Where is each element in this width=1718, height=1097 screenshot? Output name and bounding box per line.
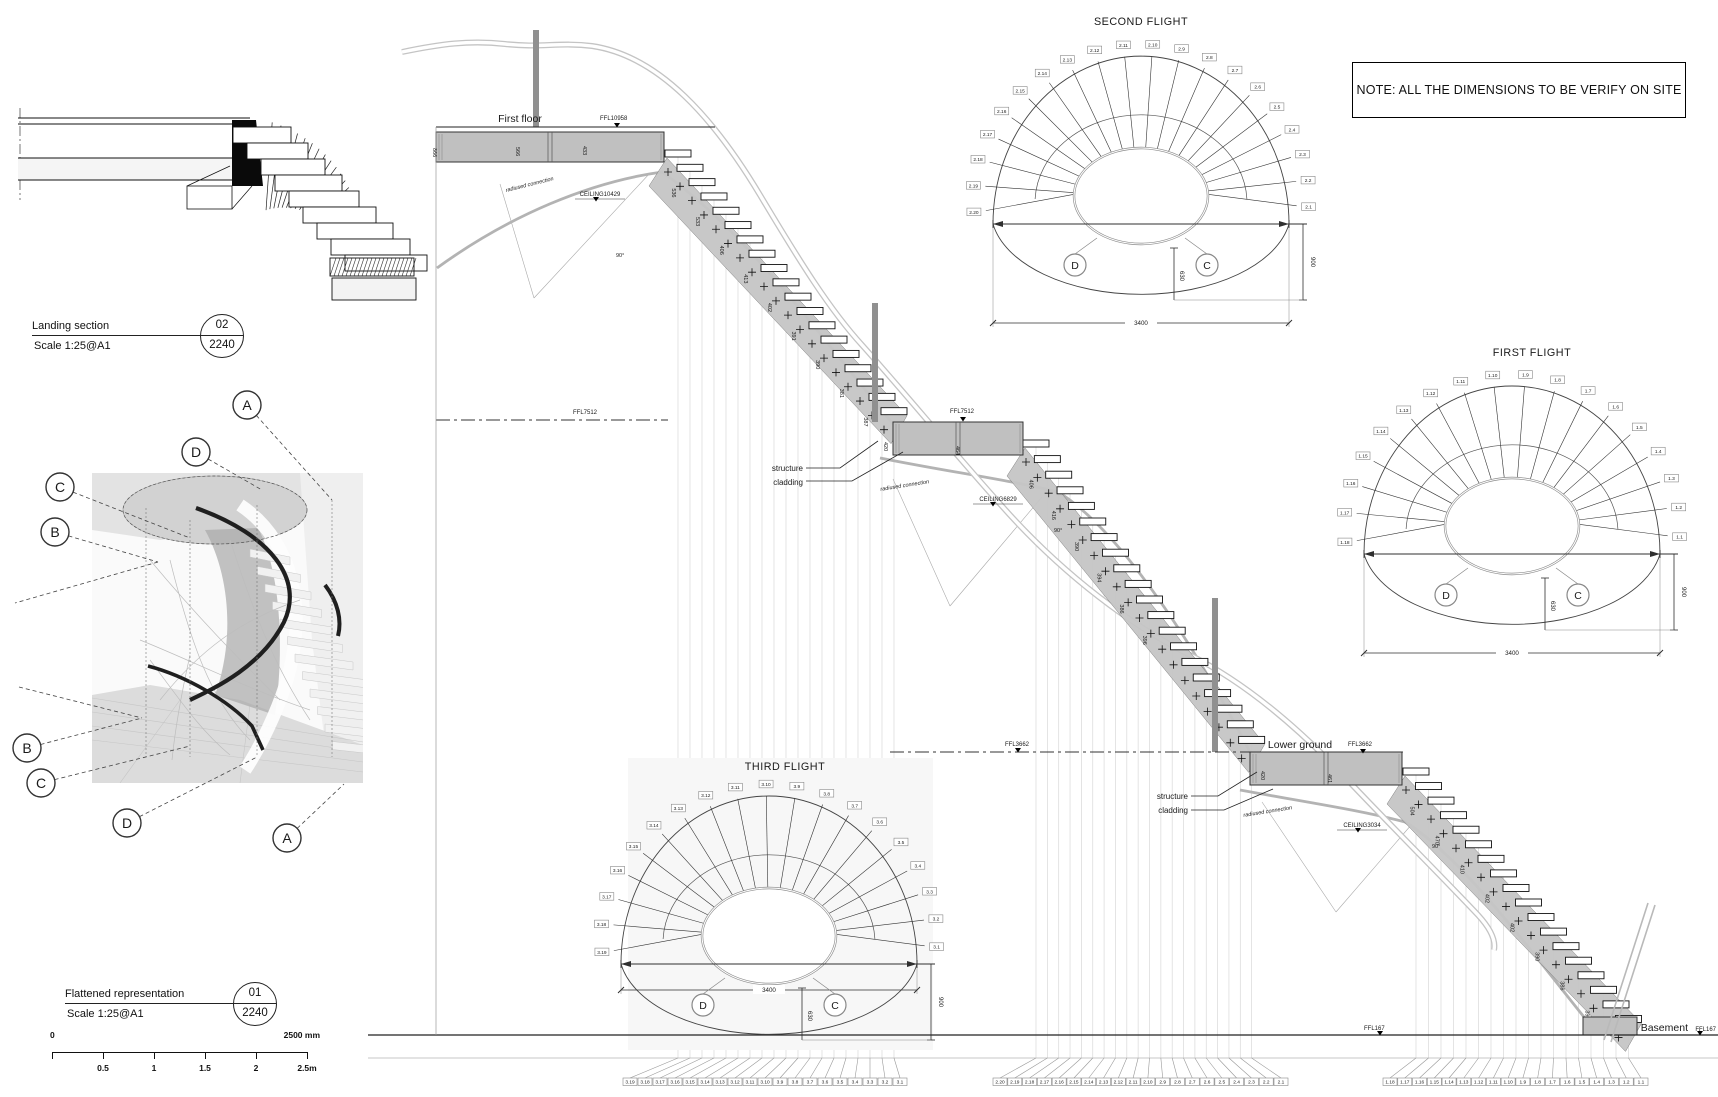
riser-dim: 396 [1141,636,1147,645]
tread-tag: 1.8 [1534,1080,1541,1086]
tread-tags: 3.193.183.173.163.153.143.133.123.113.10… [623,1058,1648,1086]
tread-label: 3.6 [876,820,883,826]
riser-dim: 386 [1559,981,1565,990]
note-box: NOTE: ALL THE DIMENSIONS TO BE VERIFY ON… [1352,62,1686,118]
cascade-step [331,239,410,255]
tread-tag: 2.13 [1099,1080,1109,1086]
tread [1137,596,1163,603]
post-second-landing [872,303,878,422]
tag-leader [825,1058,834,1078]
tread [1091,534,1117,541]
cascade-step [261,159,325,175]
tag-leader [1508,1058,1516,1078]
tread [785,293,811,300]
outer-rail-outline [402,42,1494,950]
tread [1227,721,1253,728]
tread-label: 2.15 [1015,88,1025,94]
tread-label: 3.2 [933,917,940,923]
tread-tag: 2.3 [1248,1080,1255,1086]
tag-leader [1434,1058,1453,1078]
tag-leader [1218,1058,1237,1078]
riser-dim: 391 [790,331,796,340]
sheet-number: 01 [234,983,276,1004]
tread-label: 2.6 [1254,85,1261,91]
tag-leader [1629,1058,1642,1078]
tread-tag: 2.1 [1278,1080,1285,1086]
tag-leader [1089,1058,1104,1078]
ffl-lower-ref: FFL3662 [1005,742,1030,748]
tag-leader [630,1058,678,1078]
tread-tag: 3.12 [730,1080,740,1086]
lower-slab [332,278,416,300]
tread-label: 2.20 [969,210,979,216]
structure-label-2: structure [1157,792,1189,801]
tread-tag: 2.15 [1069,1080,1079,1086]
tread-line [1362,487,1447,513]
tread-label: 1.17 [1340,510,1350,516]
tread-tag: 2.2 [1263,1080,1270,1086]
tag-leader [1030,1058,1059,1078]
tread [1466,841,1492,848]
tag-leader [810,1058,822,1078]
tread-label: 1.18 [1340,540,1350,546]
tread-tag: 3.6 [822,1080,829,1086]
cascade-step [247,143,308,159]
tread-label: 1.1 [1676,535,1683,541]
tread-label: 1.5 [1636,425,1643,431]
cascade-step [317,223,393,239]
tag-leader [1044,1058,1070,1078]
note-text: NOTE: ALL THE DIMENSIONS TO BE VERIFY ON… [1356,83,1681,97]
cascade-step [345,255,427,271]
tread-tag: 2.6 [1204,1080,1211,1086]
tread [1114,565,1140,572]
landing-dim: 420 [1259,771,1265,780]
lower-ground-landing [1250,752,1402,785]
tread-tag: 1.9 [1520,1080,1527,1086]
landing-dim: 461 [1326,774,1332,783]
tread-tag: 3.16 [670,1080,680,1086]
tag-leader [1229,1058,1251,1078]
tread-tag: 3.9 [777,1080,784,1086]
plan-marker-C: C [831,1000,839,1012]
tag-leader [1579,1058,1582,1078]
tread-label: 1.13 [1399,408,1409,414]
tread-label: 3.8 [823,791,830,797]
sheet-ref: 2240 [234,1004,276,1023]
titleblock-rule [32,335,204,336]
plan-marker-C: C [1203,260,1211,272]
tread-label: 3.11 [731,785,740,791]
landing-dim: 464 [954,446,960,455]
plan-marker-D: D [1071,260,1079,272]
flight-title-first: FIRST FLIGHT [1493,347,1571,359]
tread [1416,783,1442,790]
tread-line [1012,118,1086,169]
tag-leader [1195,1058,1207,1078]
riser-dim: 402 [766,303,772,312]
riser-dim: 406 [1027,480,1033,489]
dim-centre: 630 [806,1011,812,1022]
tread-label: 2.18 [973,157,983,163]
tread-label: 1.4 [1655,449,1662,455]
riser-dim: 416 [1050,511,1056,520]
tread [1216,705,1242,712]
tread-line [1579,524,1668,535]
tread [881,408,907,415]
dim-width: 3400 [762,987,776,994]
tag-leader [882,1058,885,1078]
tread-tag: 2.7 [1189,1080,1196,1086]
tread [1441,812,1467,819]
tread-label: 3.16 [613,868,623,874]
titleblock-rule [65,1003,237,1004]
tread-line [1563,435,1630,495]
tread [677,164,703,171]
radiused-connection-2: radiused connection [880,479,930,493]
tread-tag: 2.12 [1114,1080,1124,1086]
tread-line [998,139,1079,176]
view-scale: Scale 1:25@A1 [67,1008,144,1020]
tread-label: 2.19 [969,183,979,189]
tread-tag: 3.15 [685,1080,695,1086]
chord-arrow [1364,551,1374,557]
tread-tag: 3.18 [640,1080,650,1086]
tread-tag: 3.3 [867,1080,874,1086]
stair-void [1074,148,1208,244]
ffl-basement-a: FFL167 [1364,1026,1385,1032]
tread-line [1049,83,1101,157]
ffl-basement-b: FFL167 [1695,1027,1716,1033]
tread-label: 1.10 [1488,373,1498,379]
tread-label: 1.3 [1668,476,1675,482]
tread [833,350,859,357]
chord-arrow [993,221,1003,227]
angle-90-3: 90° [1432,844,1440,850]
tread-label: 2.2 [1305,178,1312,184]
marker-letter-A: A [242,397,252,413]
tread-line [1411,419,1468,489]
dim-right: 900 [1309,257,1315,268]
sheet-ref: 2240 [201,336,243,355]
scale-tick [205,1052,206,1059]
tread-label: 1.2 [1675,505,1682,511]
tread-label: 3.14 [649,823,659,829]
tread [1503,884,1529,891]
tag-leader [1161,1058,1163,1078]
chord-arrow [621,961,631,967]
tread [1023,440,1049,447]
landing-slab [18,158,238,180]
tag-leader [1405,1058,1429,1078]
landing-dim: 566 [514,147,520,156]
tread-tag: 3.7 [807,1080,814,1086]
scale-bar-line [52,1052,307,1053]
tread-label: 1.11 [1456,379,1465,385]
tread-line [1357,524,1445,540]
tread-tag: 3.19 [625,1080,635,1086]
tread [1478,855,1504,862]
tread-label: 2.7 [1232,68,1239,74]
tread-tag: 1.3 [1608,1080,1615,1086]
tag-leader [1133,1058,1138,1078]
tread-label: 2.1 [1305,205,1312,211]
riser-dim: 390 [814,360,820,369]
basement-label: Basement [1641,1022,1688,1034]
tread-line [1578,509,1666,520]
scale-tick [307,1052,308,1059]
tread-line [1208,181,1297,191]
tread-tag: 1.1 [1638,1080,1645,1086]
plan-marker-D: D [699,1000,707,1012]
plan-marker-D: D [1442,590,1450,602]
tread-label: 2.10 [1148,42,1158,48]
tread-label: 1.12 [1426,391,1436,397]
tread [689,179,715,186]
radiused-connection-1: radiused connection [505,176,554,194]
tread-tag: 2.5 [1219,1080,1226,1086]
scale-tick [256,1052,257,1059]
tread-label: 1.14 [1376,429,1386,435]
marker-leader [1075,238,1097,254]
tread-tag: 2.8 [1174,1080,1181,1086]
marker-letter-D: D [122,815,132,831]
dim-width: 3400 [1134,320,1148,327]
angle-90-2: 90° [1054,528,1062,534]
riser-dim: 381 [838,389,844,398]
stair-void [702,888,836,984]
tag-leader [1604,1058,1612,1078]
ceiling-lower: CEILING3034 [1343,823,1381,829]
riser-dim: 386 [1118,604,1124,613]
tread-label: 3.17 [602,894,612,900]
marker-letter-B: B [50,524,59,540]
marker-leader [1446,568,1468,584]
tread [797,307,823,314]
tread [1516,899,1542,906]
tread-tag: 1.12 [1474,1080,1484,1086]
tag-leader [1059,1058,1081,1078]
scale-max: 2500 mm [284,1030,320,1040]
dim-centre: 630 [1178,271,1184,282]
tag-leader [894,1058,900,1078]
tread-tag: 1.4 [1593,1080,1600,1086]
tread [761,265,787,272]
tread-tag: 3.1 [897,1080,904,1086]
scale-tick-label: 1 [152,1063,157,1073]
tag-leader [1552,1058,1553,1078]
scale-tick [103,1052,104,1059]
tread [1171,643,1197,650]
riser-dim: 410 [1459,865,1465,874]
tread-label: 2.9 [1178,47,1185,53]
tag-leader [840,1058,846,1078]
tag-leader [1172,1058,1177,1078]
tread [1102,549,1128,556]
scale-tick-label: 2.5m [297,1063,316,1073]
flight-title-third: THIRD FLIGHT [745,761,825,773]
drawing-ref-bubble: 02 2240 [200,314,244,358]
tread-tag: 2.10 [1143,1080,1153,1086]
tread-label: 3.15 [629,844,639,850]
tag-leader [1616,1058,1626,1078]
view-title: Flattened representation [65,988,184,1000]
tread-line [1205,157,1291,182]
tread-line [1517,386,1524,478]
dim-centre: 630 [1549,601,1555,612]
tread-label: 1.9 [1522,372,1529,378]
tread-line [1098,61,1123,149]
tag-leader [1566,1058,1567,1078]
tread-label: 2.13 [1063,57,1073,63]
tread-label: 3.12 [701,793,711,799]
ceiling-second: CEILING6829 [979,497,1017,503]
tread-line [1201,135,1281,175]
tread [1080,518,1106,525]
ceiling-first: CEILING10429 [580,192,621,198]
drawing-sheet: ADCBBCDA 5365334064134023913903813874064… [0,0,1718,1097]
tread-label: 2.11 [1119,43,1128,49]
tread-label: 3.3 [926,889,933,895]
outer-rail-curve [402,42,1494,950]
tread-line [1553,416,1608,488]
tread-label: 1.7 [1585,388,1592,394]
cladding-label-2: cladding [1158,806,1188,815]
tag-leader [1206,1058,1222,1078]
tread-tag: 2.11 [1129,1080,1138,1086]
tag-leader [1493,1058,1503,1078]
tread-tag: 2.14 [1084,1080,1094,1086]
view-scale: Scale 1:25@A1 [34,340,111,352]
tread-label: 3.19 [597,950,607,956]
tread-tag: 3.11 [746,1080,755,1086]
riser-dim: 406 [718,246,724,255]
tread-line [1494,387,1504,478]
tread [1491,870,1517,877]
chord-arrow [1279,221,1289,227]
tread-tag: 2.4 [1233,1080,1240,1086]
tread [809,322,835,329]
tag-leader [1449,1058,1466,1078]
outer-rail-core [402,42,1494,950]
tread-label: 3.18 [597,922,607,928]
tread [1403,768,1429,775]
tread-line [1357,513,1446,521]
tread-tag: 1.7 [1549,1080,1556,1086]
riser-dim: 533 [694,217,700,226]
cascade-step [275,175,342,191]
tread [1428,797,1454,804]
tread [701,193,727,200]
tread [1591,986,1617,993]
angle-90-1: 90° [616,253,624,259]
tread-tag: 3.10 [760,1080,770,1086]
tread-line [1390,438,1459,496]
graphic-scale-bar: 0 2500 mm 0.511.522.5m [40,1030,320,1082]
tread-tag: 1.5 [1579,1080,1586,1086]
tread-line [1146,56,1152,148]
scale-tick [52,1052,53,1059]
tread-tag: 2.19 [1010,1080,1020,1086]
tread [845,365,871,372]
tread [725,222,751,229]
riser-dim: 402 [1484,894,1490,903]
tread-tag: 1.2 [1623,1080,1630,1086]
scale-zero: 0 [50,1030,55,1040]
tread [1566,957,1592,964]
tag-leader [1148,1058,1150,1078]
tread-line [1073,70,1112,153]
tread [857,379,883,386]
tread-label: 1.6 [1612,404,1619,410]
tread-line [1576,482,1660,511]
level-marker [960,417,966,422]
tread-label: 3.1 [933,945,940,951]
tag-leader [1523,1058,1529,1078]
tread-line [1570,457,1647,502]
tread-tag: 2.16 [1054,1080,1064,1086]
tag-leader [1240,1058,1266,1078]
cascade-step [233,127,291,143]
tag-leader [1390,1058,1416,1078]
tread-tag: 1.10 [1503,1080,1513,1086]
tread-label: 2.16 [997,109,1007,115]
cascade-step [303,207,376,223]
tread [1148,612,1174,619]
tread-label: 3.4 [914,863,921,869]
view-title: Landing section [32,320,109,332]
ffl-first-floor: FFL10958 [600,116,628,122]
tread [1046,471,1072,478]
marker-leader [1185,238,1207,254]
detail-box [187,186,232,209]
landing-section-detail [18,108,427,300]
tread-label: 2.8 [1206,55,1213,61]
tread [1057,487,1083,494]
riser-dim: 394 [1095,573,1101,582]
tread-tag: 1.18 [1385,1080,1395,1086]
tread [1034,456,1060,463]
tread [665,150,691,157]
landing-dim: 420 [882,442,888,451]
tread-label: 1.15 [1358,454,1368,460]
tread-label: 2.3 [1299,152,1306,158]
tread-label: 2.4 [1289,127,1296,133]
marker-letter-C: C [36,775,46,791]
tread-tag: 3.2 [882,1080,889,1086]
tread-line [1464,393,1491,481]
cladding-label-1: cladding [773,478,803,487]
riser-dim: 413 [742,274,748,283]
riser-dim: 390 [1073,542,1079,551]
marker-letter-A: A [282,830,292,846]
scale-tick-label: 1.5 [199,1063,211,1073]
dim-width: 3400 [1505,650,1519,657]
tread-tag: 3.5 [837,1080,844,1086]
landing-dim: 433 [581,146,587,155]
tread-line [985,186,1074,192]
tread-label: 2.12 [1090,48,1100,54]
dim-right: 900 [1680,587,1686,598]
tread [1578,972,1604,979]
marker-leader [1556,568,1578,584]
tread [1125,580,1151,587]
tag-leader [1420,1058,1441,1078]
tread-label: 3.13 [674,806,684,812]
tread [1159,627,1185,634]
flight-title-second: SECOND FLIGHT [1094,16,1188,28]
tread-tag: 1.16 [1415,1080,1425,1086]
